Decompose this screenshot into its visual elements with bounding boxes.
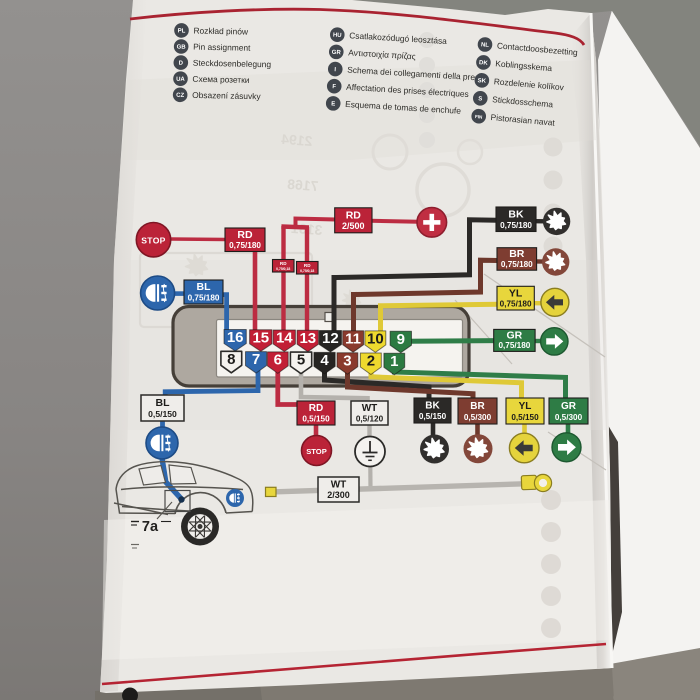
svg-text:YL: YL xyxy=(519,401,532,412)
svg-text:WT: WT xyxy=(362,403,378,414)
svg-text:8: 8 xyxy=(227,351,235,368)
svg-text:UA: UA xyxy=(176,77,185,83)
svg-text:Rozkład pinów: Rozkład pinów xyxy=(193,25,249,36)
svg-text:PL: PL xyxy=(178,28,186,34)
svg-text:0,75/180: 0,75/180 xyxy=(229,241,261,250)
svg-text:0,5/150: 0,5/150 xyxy=(419,412,447,421)
svg-text:15: 15 xyxy=(252,329,269,346)
svg-text:GR: GR xyxy=(332,50,342,57)
svg-text:YL: YL xyxy=(509,287,523,299)
svg-text:S: S xyxy=(478,96,483,102)
svg-text:0,5/300: 0,5/300 xyxy=(555,413,583,422)
svg-text:0,75/0,18: 0,75/0,18 xyxy=(300,269,314,273)
svg-text:STOP: STOP xyxy=(141,236,165,246)
svg-text:D: D xyxy=(179,61,184,67)
svg-text:BL: BL xyxy=(156,397,171,409)
svg-text:E: E xyxy=(331,101,335,107)
svg-text:7168: 7168 xyxy=(287,176,319,194)
svg-text:16: 16 xyxy=(227,329,244,346)
svg-text:1: 1 xyxy=(390,353,398,370)
svg-text:0,75/180: 0,75/180 xyxy=(500,221,532,230)
svg-text:0,5/120: 0,5/120 xyxy=(356,414,384,423)
svg-text:6: 6 xyxy=(274,352,282,369)
svg-text:WT: WT xyxy=(331,480,347,491)
svg-text:BR: BR xyxy=(470,401,485,412)
svg-text:0,5/150: 0,5/150 xyxy=(511,413,539,422)
svg-text:12: 12 xyxy=(322,330,339,347)
svg-text:2: 2 xyxy=(367,353,375,370)
svg-text:2/300: 2/300 xyxy=(327,490,350,500)
svg-text:GR: GR xyxy=(561,401,577,412)
svg-text:NL: NL xyxy=(481,42,490,49)
svg-text:DK: DK xyxy=(479,60,489,67)
svg-text:STOP: STOP xyxy=(306,447,327,456)
svg-text:10: 10 xyxy=(367,331,384,348)
svg-text:7: 7 xyxy=(252,351,260,368)
svg-text:FIN: FIN xyxy=(475,114,483,120)
svg-text:4: 4 xyxy=(320,352,329,369)
svg-text:RD: RD xyxy=(280,261,287,266)
svg-text:SK: SK xyxy=(477,78,486,85)
svg-text:9: 9 xyxy=(397,331,405,348)
svg-text:RD: RD xyxy=(304,263,311,268)
svg-text:7a: 7a xyxy=(142,519,159,535)
svg-text:Схема розетки: Схема розетки xyxy=(192,74,250,85)
svg-text:Steckdosenbelegung: Steckdosenbelegung xyxy=(193,58,272,70)
svg-text:5: 5 xyxy=(297,352,305,369)
svg-text:Pin assignment: Pin assignment xyxy=(193,42,251,53)
svg-text:BR: BR xyxy=(509,248,525,260)
svg-text:Obsazení zásuvky: Obsazení zásuvky xyxy=(192,90,261,101)
svg-text:GB: GB xyxy=(177,45,187,51)
svg-text:BK: BK xyxy=(508,208,524,220)
svg-text:3: 3 xyxy=(343,352,351,369)
svg-text:CZ: CZ xyxy=(176,93,184,99)
svg-text:0,5/150: 0,5/150 xyxy=(148,409,177,419)
svg-text:14: 14 xyxy=(276,330,293,347)
svg-text:11: 11 xyxy=(345,330,361,347)
svg-text:2/500: 2/500 xyxy=(342,221,365,231)
svg-text:2194: 2194 xyxy=(281,131,313,149)
svg-text:0,75/0,18: 0,75/0,18 xyxy=(276,267,290,271)
svg-text:RD: RD xyxy=(309,403,323,414)
svg-text:0,75/180: 0,75/180 xyxy=(498,341,530,350)
svg-text:0,75/180: 0,75/180 xyxy=(501,260,533,269)
svg-text:0,5/300: 0,5/300 xyxy=(464,413,492,422)
svg-text:0,75/180: 0,75/180 xyxy=(188,293,220,302)
svg-text:HU: HU xyxy=(333,33,342,40)
svg-text:0,5/150: 0,5/150 xyxy=(302,414,330,423)
svg-text:13: 13 xyxy=(299,330,316,347)
svg-text:RD: RD xyxy=(346,209,362,221)
svg-text:RD: RD xyxy=(237,229,253,241)
svg-text:BK: BK xyxy=(425,401,440,412)
svg-text:F: F xyxy=(332,84,336,90)
svg-text:0,75/180: 0,75/180 xyxy=(500,299,532,308)
svg-text:BL: BL xyxy=(197,281,212,293)
svg-text:GR: GR xyxy=(507,330,523,342)
